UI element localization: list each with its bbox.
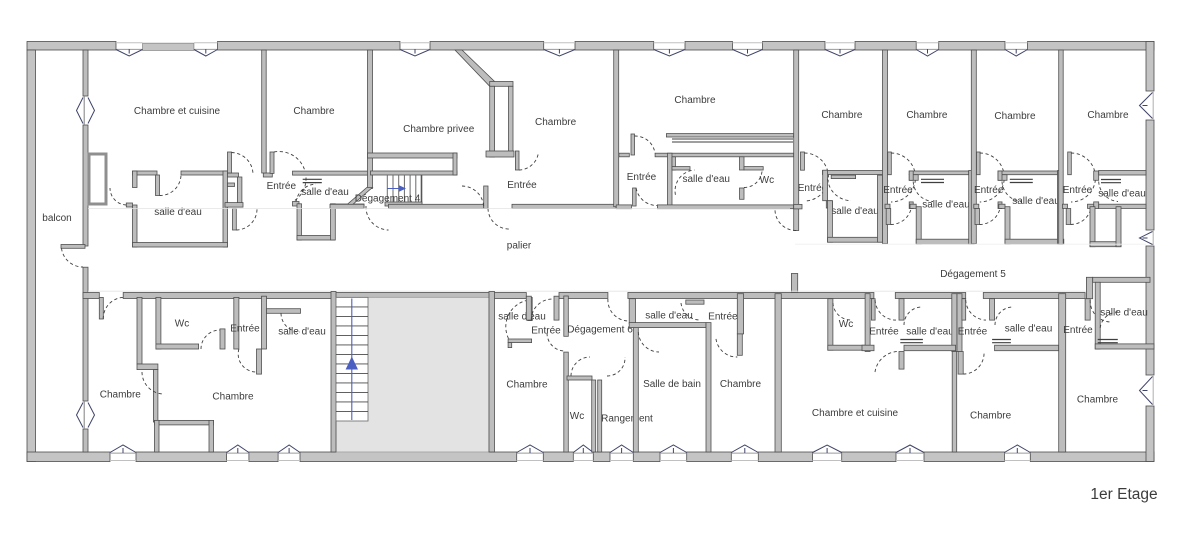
- svg-text:salle d'eau: salle d'eau: [922, 200, 970, 211]
- svg-text:Chambre: Chambre: [293, 106, 335, 117]
- svg-text:Entrée: Entrée: [708, 312, 738, 323]
- svg-text:salle d'eau: salle d'eau: [645, 311, 693, 322]
- svg-text:salle d'eau: salle d'eau: [498, 312, 546, 323]
- svg-text:salle d'eau: salle d'eau: [1012, 196, 1060, 207]
- svg-text:Chambre privee: Chambre privee: [403, 124, 475, 135]
- svg-text:Entrée: Entrée: [1063, 325, 1093, 336]
- svg-text:Chambre: Chambre: [674, 95, 716, 106]
- svg-text:Wc: Wc: [175, 319, 189, 330]
- svg-text:Dégagement 6: Dégagement 6: [567, 325, 633, 336]
- svg-text:Entrée: Entrée: [958, 327, 988, 338]
- svg-text:Chambre et cuisine: Chambre et cuisine: [134, 106, 221, 117]
- svg-text:Entrée: Entrée: [507, 180, 537, 191]
- svg-text:Chambre: Chambre: [821, 110, 863, 121]
- svg-text:Wc: Wc: [570, 411, 584, 422]
- svg-text:Entrée: Entrée: [1063, 185, 1093, 196]
- svg-text:Chambre: Chambre: [720, 379, 762, 390]
- svg-text:Rangement: Rangement: [601, 414, 653, 425]
- svg-text:salle d'eau: salle d'eau: [831, 206, 879, 217]
- svg-text:Chambre: Chambre: [970, 411, 1012, 422]
- svg-text:Salle de bain: Salle de bain: [643, 379, 701, 390]
- svg-text:Entrée: Entrée: [883, 185, 913, 196]
- svg-text:salle d'eau: salle d'eau: [1098, 188, 1146, 199]
- svg-text:1er Etage: 1er Etage: [1090, 486, 1157, 503]
- svg-text:balcon: balcon: [42, 213, 71, 224]
- svg-text:salle d'eau: salle d'eau: [682, 174, 730, 185]
- svg-text:salle d'eau: salle d'eau: [1005, 324, 1053, 335]
- svg-text:Chambre: Chambre: [1077, 395, 1119, 406]
- svg-text:Entrée: Entrée: [531, 325, 561, 336]
- svg-text:Chambre: Chambre: [506, 380, 548, 391]
- svg-text:Dégagement 4: Dégagement 4: [355, 194, 421, 205]
- svg-text:Entrée: Entrée: [627, 172, 657, 183]
- svg-text:Dégagement 5: Dégagement 5: [940, 269, 1006, 280]
- svg-text:Chambre: Chambre: [906, 110, 948, 121]
- svg-text:Wc: Wc: [760, 175, 774, 186]
- svg-text:Chambre: Chambre: [212, 392, 254, 403]
- svg-text:Entrée: Entrée: [267, 181, 297, 192]
- svg-text:salle d'eau: salle d'eau: [301, 187, 349, 198]
- svg-text:Chambre: Chambre: [1087, 110, 1129, 121]
- svg-text:Entrée: Entrée: [230, 324, 260, 335]
- svg-text:Chambre: Chambre: [100, 390, 142, 401]
- svg-text:Chambre: Chambre: [994, 111, 1036, 122]
- svg-text:Entrée: Entrée: [974, 185, 1004, 196]
- svg-text:palier: palier: [507, 241, 532, 252]
- svg-text:Chambre et cuisine: Chambre et cuisine: [812, 408, 899, 419]
- svg-text:salle d'eau: salle d'eau: [1100, 307, 1148, 318]
- svg-text:Wc: Wc: [839, 319, 853, 330]
- svg-text:salle d'eau: salle d'eau: [906, 326, 954, 337]
- svg-text:Chambre: Chambre: [535, 117, 577, 128]
- svg-text:salle d'eau: salle d'eau: [278, 327, 326, 338]
- svg-text:Entrée: Entrée: [869, 327, 899, 338]
